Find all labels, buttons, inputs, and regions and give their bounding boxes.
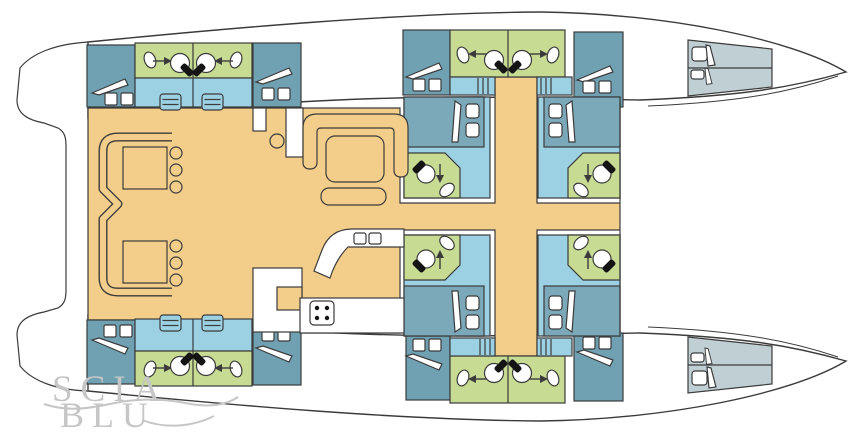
pillow-icon (466, 104, 479, 118)
burner (325, 306, 329, 310)
stern-platform (17, 42, 88, 391)
pillow-icon (549, 104, 562, 118)
wall-stub (253, 108, 266, 131)
aft-port-cabin-block (87, 43, 301, 110)
wardrobe-block (574, 32, 623, 107)
stool-icon (170, 147, 182, 159)
pillow-icon (691, 70, 704, 79)
steps-icon (202, 94, 223, 110)
pillow-icon (549, 123, 562, 137)
bench-seat (321, 188, 386, 205)
steps-icon (160, 315, 181, 331)
pillow-icon (692, 47, 707, 61)
galley-floor-notch (277, 287, 302, 310)
pillow-icon (466, 123, 479, 137)
port-crew-cabin (688, 40, 772, 96)
stool-icon (170, 274, 182, 286)
guest-cabin-upper-left (404, 97, 490, 199)
guest-cabin-lower-right (538, 234, 620, 336)
stool-icon (170, 240, 182, 252)
guest-cabin-upper-right (538, 97, 620, 199)
burner (315, 316, 319, 320)
pillow-icon (466, 315, 479, 329)
stool-icon (170, 164, 182, 176)
companionway-floor (537, 77, 572, 95)
table-icon (123, 147, 167, 189)
stool-icon (270, 134, 284, 148)
sink-basin (369, 233, 381, 244)
pillow-icon (549, 296, 562, 310)
pillow-icon (692, 371, 707, 385)
stove-icon (310, 301, 334, 325)
wardrobe-block (403, 30, 450, 95)
guest-cabin-lower-left (404, 234, 490, 336)
catamaran-floorplan: SCIA BLU (0, 0, 850, 433)
pillow-icon (549, 315, 562, 329)
steps-icon (202, 315, 223, 331)
table-icon (123, 241, 167, 283)
burner (315, 306, 319, 310)
pillow-icon (466, 296, 479, 310)
stool-icon (170, 181, 182, 193)
stool-icon (170, 257, 182, 269)
starboard-crew-cabin (688, 337, 772, 393)
companionway-floor (450, 338, 495, 356)
wall-stub (286, 108, 303, 157)
burner (325, 316, 329, 320)
floorplan-svg: SCIA BLU (0, 0, 850, 433)
steps-icon (160, 94, 181, 110)
companionway-floor (537, 338, 572, 356)
sink-basin (354, 233, 366, 244)
table-icon (326, 136, 384, 182)
pillow-icon (691, 353, 704, 362)
